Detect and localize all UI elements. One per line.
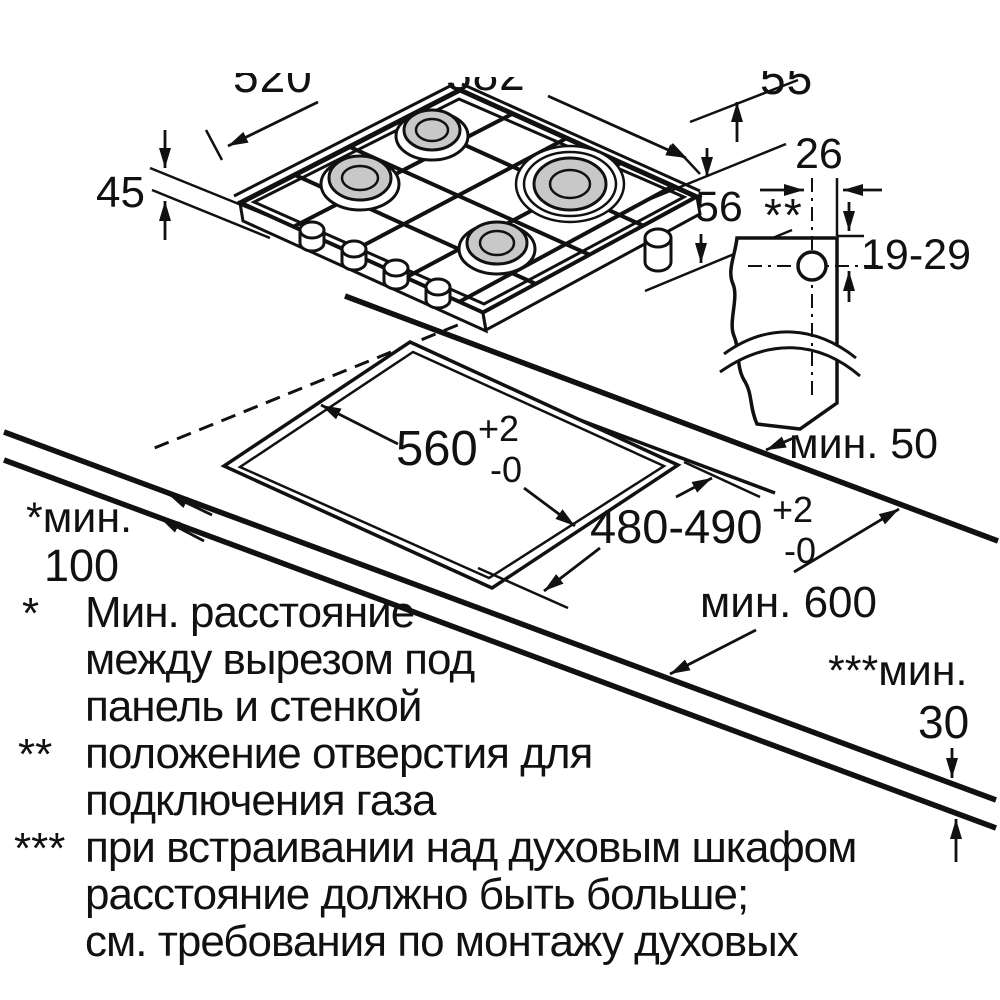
hob-isometric-view <box>234 84 700 331</box>
dim-width-582: 582 <box>446 77 566 95</box>
arrow-min600-b <box>670 630 756 674</box>
burner-bottom <box>467 222 527 264</box>
footnote-1-line-3: панель и стенкой <box>85 685 421 729</box>
footnote-3-line-1: при встраивании над духовым шкафом <box>85 826 856 870</box>
gas-footnote-marker: ** <box>764 188 804 242</box>
footnote-3-line-3: см. требования по монтажу духовых <box>85 920 798 964</box>
footnote-2-line-2: подключения газа <box>85 779 435 823</box>
dim-side-clearance-label: *мин. <box>26 497 132 540</box>
arrow-480-b <box>544 548 600 591</box>
dim-width-582-value: 582 <box>446 77 566 95</box>
dim-height-45: 45 <box>96 171 145 215</box>
burner-right <box>534 158 606 210</box>
dim-height-55-value: 55 <box>760 71 850 97</box>
dim-height-56: 56 <box>695 186 743 229</box>
dim-cutout-width-tol-plus: +2 <box>478 411 519 447</box>
footnote-1-marker: * <box>22 592 39 636</box>
dim-cutout-depth-480-490: 480-490 <box>590 503 763 550</box>
dim-cutout-width-tol-minus: -0 <box>490 452 522 488</box>
dim-height-55: 55 <box>760 71 850 97</box>
dim-thickness-label: ***мин. <box>828 650 967 693</box>
dim-depth-520: 520 <box>233 73 345 97</box>
arrow-480-a <box>676 478 712 497</box>
dim-cutout-width-560: 560 <box>396 425 478 474</box>
dim-thickness-value: 30 <box>918 699 969 745</box>
footnote-1-line-1: Мин. расстояние <box>85 591 414 635</box>
tick-582 <box>672 144 700 174</box>
arrow-520 <box>228 102 318 146</box>
footnote-3-line-2: расстояние должно быть больше; <box>85 873 748 917</box>
dim-gas-offset-26: 26 <box>795 133 843 176</box>
dim-gas-range-19-29: 19-29 <box>861 234 971 277</box>
dim-min-depth-600: мин. 600 <box>700 581 877 625</box>
ext-45-top <box>150 168 266 215</box>
dim-rear-clearance-min50: мин. 50 <box>789 423 938 466</box>
footnote-1-line-2: между вырезом под <box>85 638 474 682</box>
footnote-3-marker: *** <box>14 827 65 871</box>
footnote-2-line-1: положение отверстия для <box>85 732 592 776</box>
burner-left <box>329 156 391 200</box>
burner-top <box>404 110 460 150</box>
dim-depth-520-value: 520 <box>233 73 345 97</box>
gas-hole <box>798 252 826 280</box>
tick-520 <box>206 130 222 160</box>
footnote-2-marker: ** <box>18 733 52 777</box>
dim-side-clearance-value: 100 <box>44 543 119 588</box>
dim-cutout-depth-tol-minus: -0 <box>784 533 816 569</box>
ext-line-480-a <box>684 462 760 497</box>
dim-cutout-depth-tol-plus: +2 <box>772 492 813 528</box>
installation-diagram: 520 582 55 45 56 26 ** 19-29 мин. 50 560… <box>0 0 1000 1000</box>
gas-inlet-stub <box>645 229 671 271</box>
